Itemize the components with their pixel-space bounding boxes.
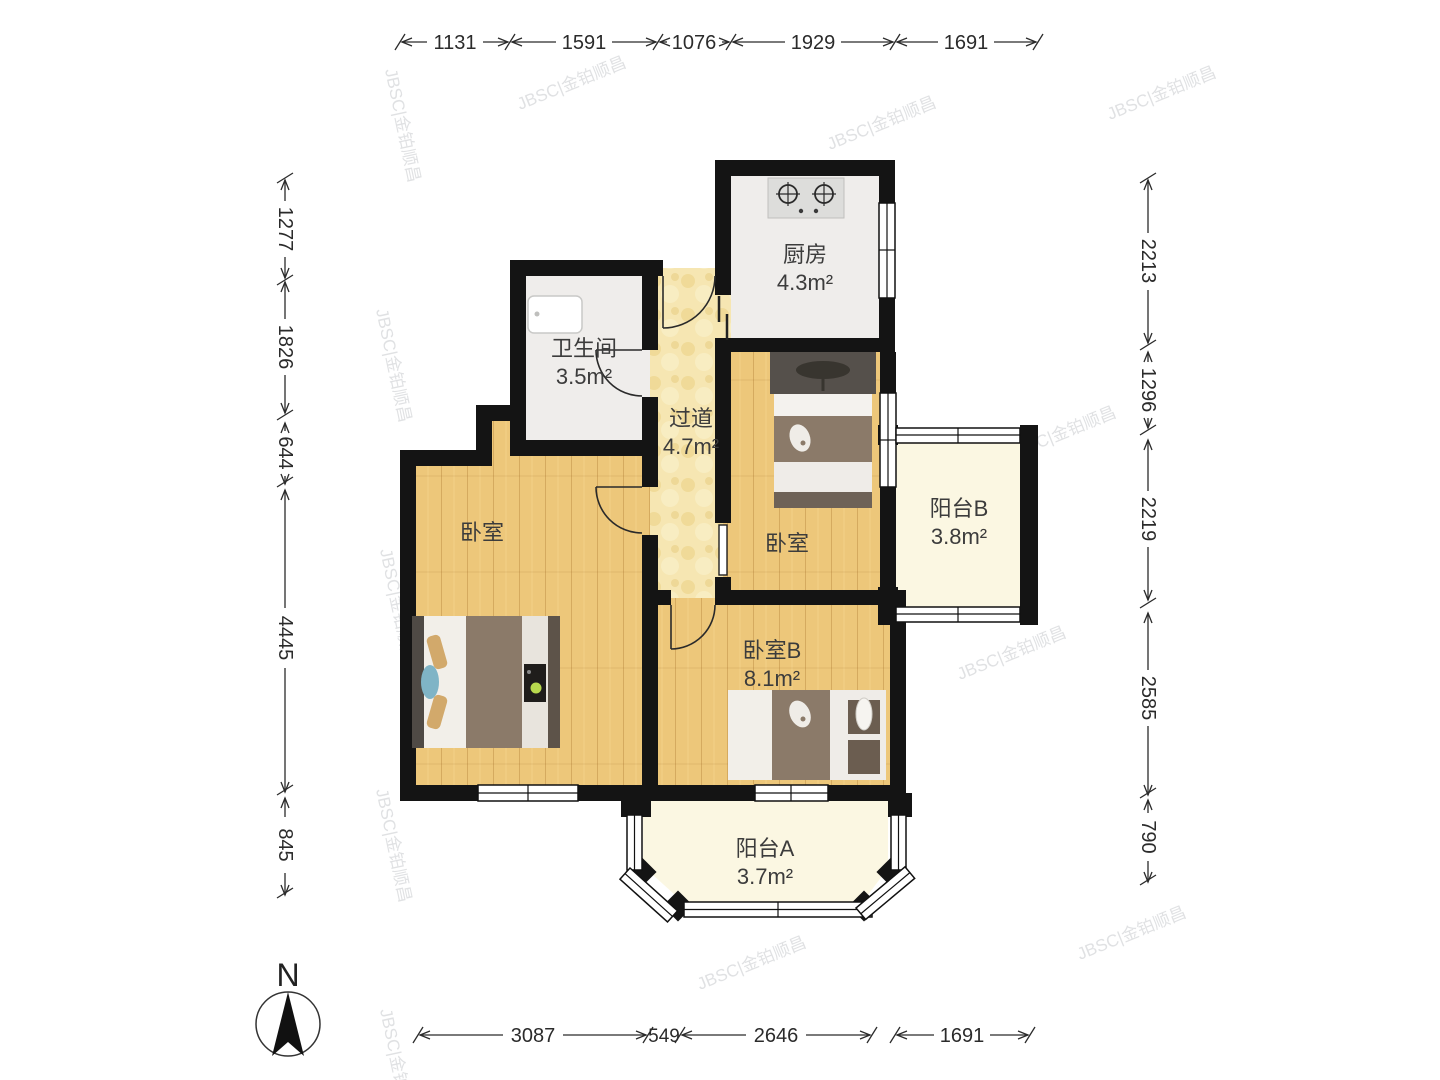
balcony-a-left-window [627,815,642,870]
watermark-text: JBSC|金铂顺昌 [824,93,939,154]
dim-left-0: 1277 [274,207,296,252]
bed-single-b-icon [728,690,886,780]
dim-left-1: 1826 [274,325,296,370]
watermark-text: JBSC|金铂顺昌 [514,53,629,114]
dim-right-2: 2219 [1137,497,1159,542]
compass: N [256,957,320,1056]
balcony-a-label: 阳台A [736,836,795,861]
balcony-a-right-window [891,815,906,870]
bed-single-right-icon [770,352,876,508]
dim-right-0: 2213 [1137,239,1159,284]
watermark-text: JBSC|金铂顺昌 [954,623,1069,684]
dim-right-4: 790 [1137,820,1159,853]
dimensions-left: 1277 1826 644 4445 845 [274,173,296,898]
bathroom-label: 卫生间 [551,336,617,361]
balcony-b-top-window [896,428,1020,443]
watermark-text: JBSC|金铂顺昌 [1074,903,1189,964]
dim-bottom-0: 3087 [511,1025,556,1047]
balcony-a-area: 3.7m² [737,864,793,889]
dim-right-3: 2585 [1137,676,1159,721]
bed-double-left-icon [412,616,560,748]
watermark-text: JBSC|金铂顺昌 [381,67,424,184]
kitchen-window [879,203,895,298]
dim-top-2: 1076 [672,32,717,54]
hallway-area: 4.7m² [663,434,719,459]
stove-icon [768,178,844,218]
kitchen-label: 厨房 [783,242,827,267]
watermark-text: JBSC|金铂顺昌 [372,307,415,424]
compass-north-label: N [276,957,299,993]
balcony-a-door-window [755,785,828,801]
floorplan-page: JBSC|金铂顺昌 JBSC|金铂顺昌 JBSC|金铂顺昌 JBSC|金铂顺昌 … [0,0,1440,1080]
dim-left-2: 644 [274,436,296,469]
dim-top-4: 1691 [944,32,989,54]
bedroom-right-window [880,393,896,487]
dim-left-3: 4445 [274,616,296,661]
bedroom-left-label: 卧室 [460,520,504,545]
balcony-b-area: 3.8m² [931,524,987,549]
bedroom-b-label: 卧室B [743,638,802,663]
dim-bottom-2: 2646 [754,1025,799,1047]
watermark-text: JBSC|金铂顺昌 [376,1007,419,1080]
watermark-text: JBSC|金铂顺昌 [372,787,415,904]
kitchen-area: 4.3m² [777,270,833,295]
balcony-a-bottom-window [684,902,872,917]
dim-right-1: 1296 [1137,368,1159,413]
hallway-label: 过道 [669,406,713,431]
bathroom-area: 3.5m² [556,364,612,389]
bedroom-left-window [478,785,578,801]
watermark-text: JBSC|金铂顺昌 [694,933,809,994]
north-arrow-icon [272,992,304,1056]
bedroom-b-area: 8.1m² [744,666,800,691]
dimensions-right: 2213 1296 2219 2585 790 [1137,173,1159,885]
dim-bottom-3: 1691 [940,1025,985,1047]
dim-bottom-1: 549 [648,1026,680,1047]
dim-left-4: 845 [274,828,296,861]
dimensions-bottom: 3087 549 2646 1691 [413,1025,1035,1047]
bedroom-right-label: 卧室 [765,531,809,556]
watermark-text: JBSC|金铂顺昌 [1104,63,1219,124]
washbasin-icon [528,296,582,333]
dim-top-3: 1929 [791,32,836,54]
balcony-b-label: 阳台B [930,496,989,521]
dim-top-1: 1591 [562,32,607,54]
balcony-b-bottom-window [896,607,1020,622]
bedroom-right-door [719,525,727,575]
floorplan-svg: JBSC|金铂顺昌 JBSC|金铂顺昌 JBSC|金铂顺昌 JBSC|金铂顺昌 … [0,0,1440,1080]
dim-top-0: 1131 [433,32,476,54]
dimensions-top: 1131 1591 1076 1929 1691 [395,32,1043,54]
